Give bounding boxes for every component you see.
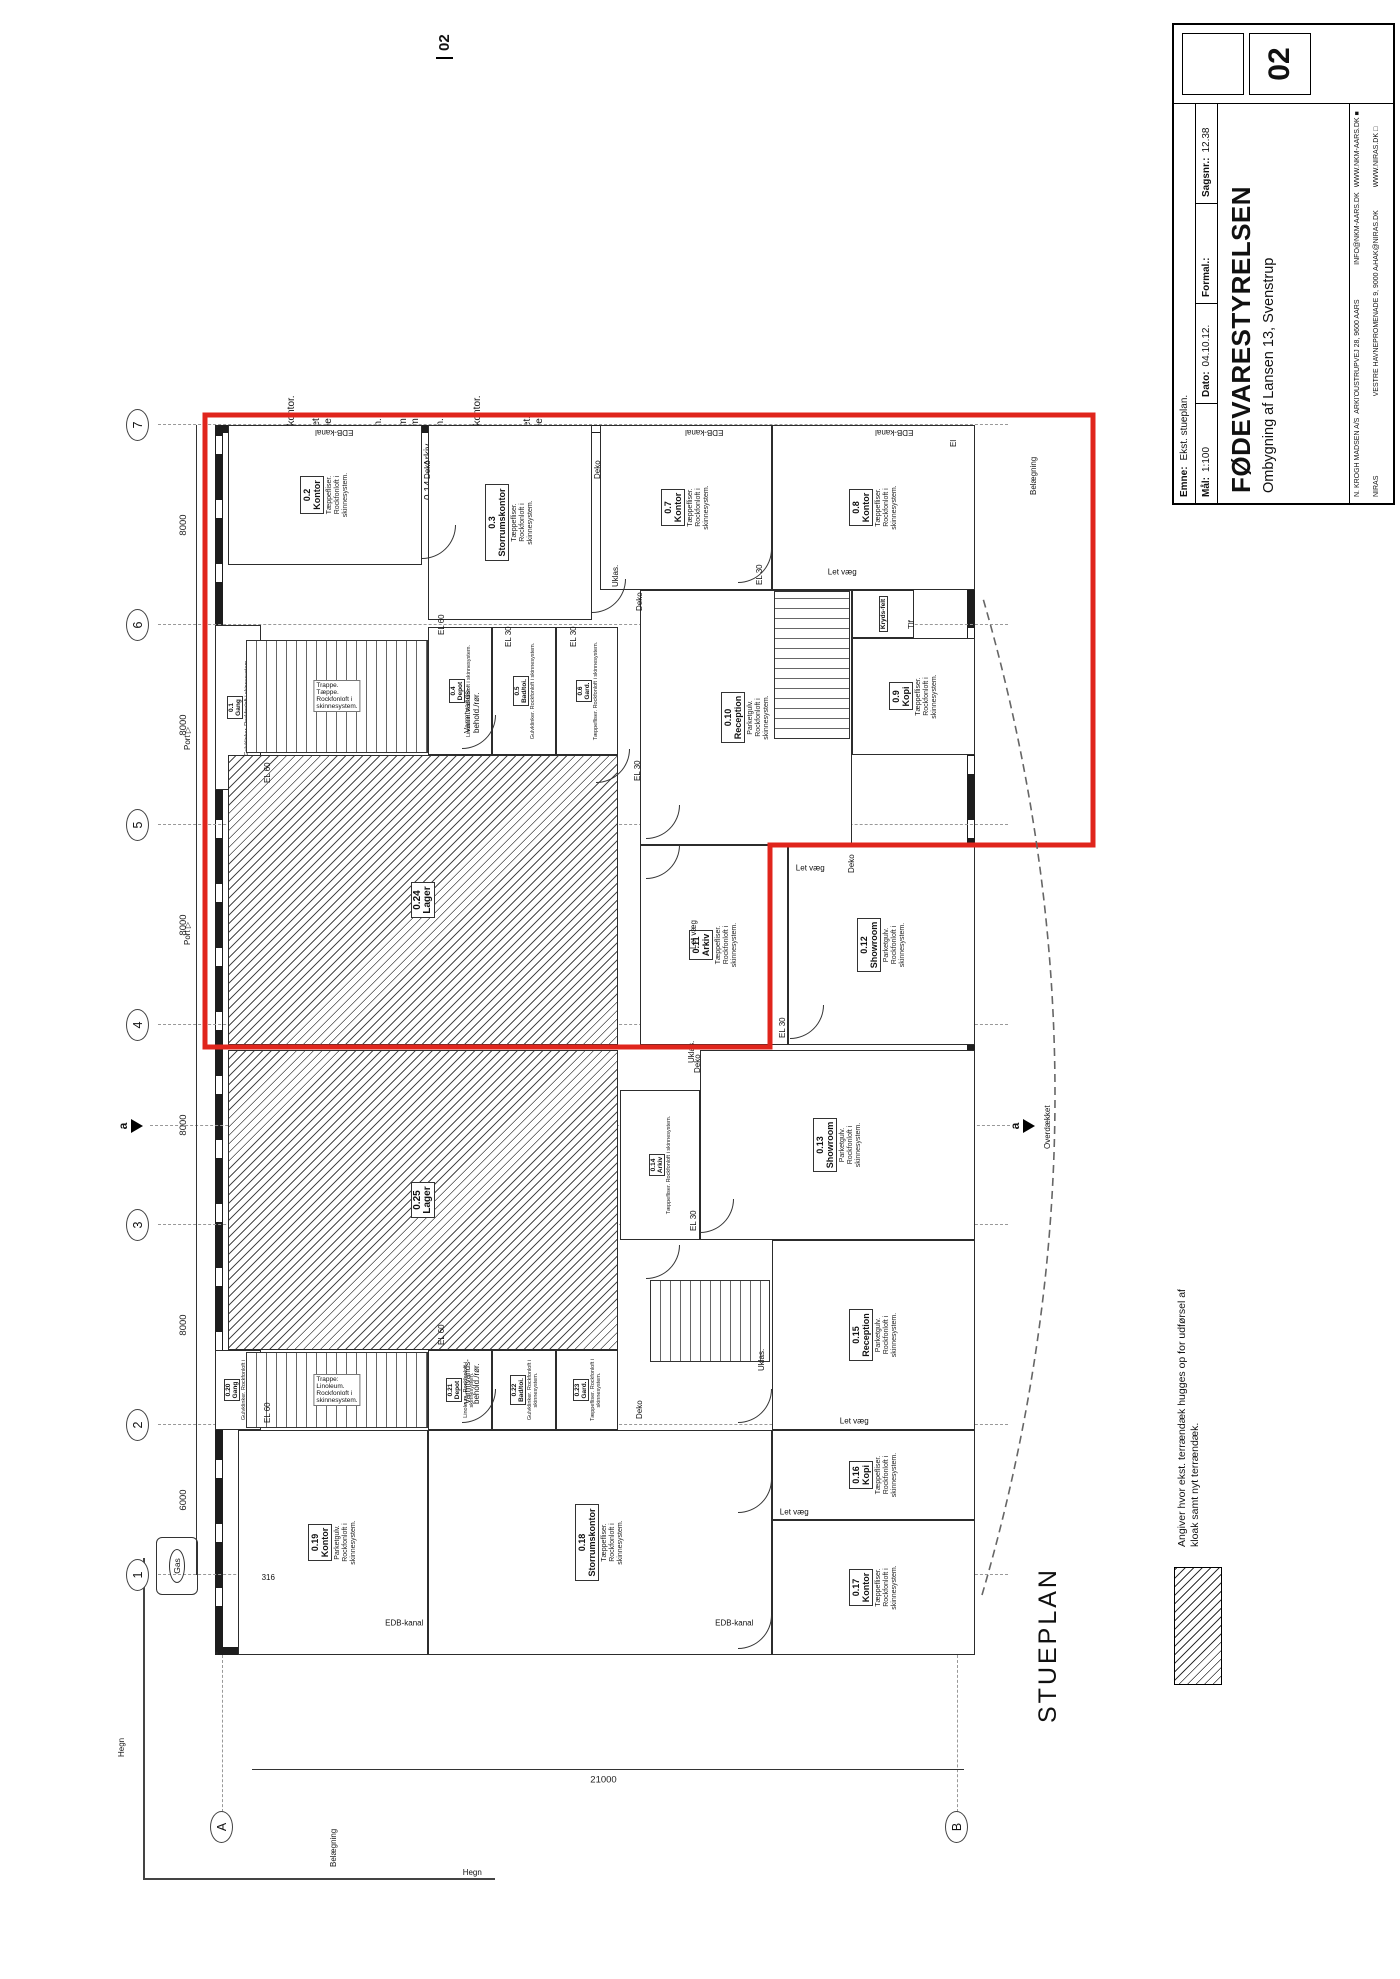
room-kryds-felt-label: Kryds-felt: [879, 596, 888, 632]
room-0-13-label: 0.13 Showroom: [813, 1118, 837, 1173]
sagsnr-value: 12.38: [1201, 128, 1212, 153]
room-0-17: 0.17 KontorTæppefliser. Rockfonloft i sk…: [772, 1520, 975, 1655]
room-0-25-label: 0.25 Lager: [411, 1182, 435, 1217]
room-0-10-floor: Parketgulv. Rockfonloft i skinnesystem.: [747, 695, 771, 739]
room-0-15: 0.15 ReceptionParketgulv. Rockfonloft i …: [772, 1240, 975, 1430]
room-0-15-label: 0.15 Reception: [849, 1309, 873, 1361]
plan-label-varmtvands-behold-r-r-: Varmtvands- behold./rør.: [464, 688, 481, 733]
grid-bubble-A: A: [210, 1811, 233, 1843]
title-block-emne-row: Emne: Ekst. stueplan.: [1174, 104, 1196, 503]
plan-label-uklas-: Uklas.: [612, 565, 621, 587]
plan-label-deko: Deko: [594, 460, 603, 479]
room-list-item-name: Reception.: [373, 130, 385, 466]
facade-wall-north: [215, 428, 223, 1652]
plan-label-el-30: EL 30: [690, 1210, 699, 1231]
room-0-18-label: 0.18 Storrumskontor: [575, 1505, 599, 1581]
title-block-number-column: 02: [1174, 25, 1393, 103]
room-0-11: 0.11 ArkivTæppefliser. Rockfonloft i ski…: [640, 845, 788, 1045]
plan-label-el-30: EL 30: [505, 626, 514, 647]
plan-label-el-60: EL 60: [438, 614, 447, 635]
room-0-6-label: 0.6 Gard.: [576, 680, 592, 703]
plan-label-hegn: Hegn: [118, 1738, 127, 1757]
grid-bubble-5: 5: [126, 809, 149, 841]
plan-label-let-v-g: Let væg: [828, 568, 857, 577]
room-list-item-name: Bad - toilet.: [311, 130, 323, 466]
title-block-main: Emne: Ekst. stueplan. Mål: 1:100 Dato: 0…: [1174, 103, 1393, 503]
plan-label-uklas-: Uklas.: [688, 1041, 697, 1063]
grid-bubble-1: 1: [126, 1559, 149, 1591]
section-arrow-icon: [1023, 1119, 1035, 1133]
firm2-email: HAK@NIRAS.DK: [1372, 187, 1391, 264]
room-0-17-floor: Tæppefliser. Rockfonloft i skinnesystem.: [875, 1565, 899, 1609]
room-0-2-floor: Tæppefliser. Rockfonloft i skinnesystem.: [326, 473, 350, 517]
plan-label-let-v-g: Let væg: [780, 1508, 809, 1517]
plan-label-el-30: EL 30: [756, 564, 765, 585]
room-0-22-floor: Gulvklinker. Rockfonloft i skinnesystem.: [527, 1351, 539, 1429]
plan-label-varmtvands-behold-r-r-: Varmtvands- behold./rør.: [464, 1359, 481, 1404]
plan-label-let-v-g: Let væg: [796, 864, 825, 873]
plan-label-deko: Deko: [424, 460, 433, 479]
room-0-22: 0.22 Bad/toi.Gulvklinker. Rockfonloft i …: [492, 1350, 556, 1430]
room-0-8-label: 0.8 Kontor: [849, 489, 873, 527]
grid-dimension: 6000: [178, 1478, 189, 1522]
revision-box: [1182, 33, 1244, 95]
room-0-23-label: 0.23 Gard.: [573, 1379, 589, 1402]
room-list-item-name: Kopirum.: [361, 130, 373, 466]
room-0-23: 0.23 Gard.Tæppefliser. Rockfonloft i ski…: [556, 1350, 618, 1430]
legend-text: Angiver hvor ekst. terrændæk hugges op f…: [1176, 1279, 1202, 1547]
room-list-item-name: Kontor.: [485, 130, 497, 466]
firm1-name: N. KROGH MADSEN A/S ARKITEKTER MAA: [1353, 396, 1372, 497]
grid-dimension: 8000: [178, 1303, 189, 1347]
maal-label: Mål:: [1201, 477, 1212, 497]
grid-dimension: 8000: [178, 503, 189, 547]
room-list-item-name: Garderobe.: [323, 130, 335, 466]
stairs-4: [650, 1280, 770, 1362]
plan-label-el-60: EL 60: [264, 762, 273, 783]
grid-line-A: [222, 1655, 223, 1817]
plan-label-let-v-g: Let væg: [840, 1417, 869, 1426]
checkbox-empty-icon: □: [1373, 127, 1380, 131]
plan-title: STUEPLAN: [1034, 1567, 1063, 1723]
room-0-3: 0.3 StorrumskontorTæppefliser. Rockfonlo…: [428, 425, 592, 620]
room-list-item-name: Lager.: [559, 130, 571, 466]
emne-label: Emne:: [1179, 466, 1190, 497]
room-list-item-name: Kontor.: [348, 130, 360, 466]
room-0-7-label: 0.7 Kontor: [661, 489, 685, 527]
room-0-3-floor: Tæppefliser. Rockfonloft i skinnesystem.: [511, 500, 535, 544]
room-list-item-name: Kopirum.: [448, 130, 460, 466]
maal-value: 1:100: [1201, 447, 1212, 472]
room-0-22-label: 0.22 Bad/toi.: [510, 1375, 526, 1405]
room-0-6-floor: Tæppefliser. Rockfonloft i skinnesystem.: [593, 642, 599, 740]
room-0-5: 0.5 Bad/toi.Gulvklinker. Rockfonloft i s…: [492, 627, 556, 755]
room-0-25: 0.25 Lager: [228, 1050, 618, 1350]
client-name: FØDEVARESTYRELSEN: [1226, 114, 1257, 493]
room-0-24: 0.24 Lager: [228, 755, 618, 1045]
legend-hatch-swatch: [1174, 1567, 1222, 1685]
grid-dim-chain: [196, 425, 197, 1575]
room-0-13-floor: Parketgulv. Rockfonloft i skinnesystem.: [839, 1123, 863, 1167]
drawing-number-box: 02: [1249, 33, 1311, 95]
room-0-16-floor: Tæppefliser. Rockfonloft i skinnesystem.: [875, 1453, 899, 1497]
plan-label-edb-kanal: EDB-kanal: [385, 1620, 423, 1629]
gas-unit: Gas: [156, 1537, 198, 1595]
room-list-item-name: Lager.: [547, 130, 559, 466]
room-list-item-name: Storrumskontor.: [472, 130, 484, 466]
room-0-18-floor: Tæppefliser. Rockfonloft i skinnesystem.: [601, 1520, 625, 1564]
plan-label-uklas-: Uklas.: [758, 1349, 767, 1371]
plan-label-overd-kket: Overdækket: [1044, 1105, 1053, 1149]
stairs-label: Trappe. Tæppe. Rockfonloft i skinnesyste…: [313, 681, 360, 713]
room-0-1-label: 0.1 Gang: [227, 696, 243, 719]
plan-label-tlf: Tlf: [908, 620, 917, 629]
room-0-21-label: 0.21 Depot: [446, 1378, 462, 1402]
room-0-19-label: 0.19 Kontor: [308, 1524, 332, 1562]
grid-bubble-4: 4: [126, 1009, 149, 1041]
dato-cell: Dato: 04.10.12.: [1196, 303, 1217, 403]
section-marker-label: a: [1008, 1123, 1022, 1130]
emne-value: Ekst. stueplan.: [1179, 395, 1190, 461]
stairs-2: Trappe: Linoleum. Rockfonloft i skinnesy…: [246, 1352, 428, 1428]
firm1-address: OUSTRUPVEJ 28, 9600 AARS: [1353, 265, 1372, 397]
title-block-project: FØDEVARESTYRELSEN Ombygning af Lansen 13…: [1218, 104, 1349, 503]
format-cell: Formal.:: [1196, 203, 1217, 303]
room-list-item-name: Reception.: [435, 130, 447, 466]
fence-line: [143, 1878, 495, 1880]
plan-label-el-30: EL 30: [779, 1017, 788, 1038]
plan-label-bel-gning: Belægning: [1030, 457, 1039, 495]
plan-label-hegn: Hegn: [463, 1869, 482, 1878]
format-label: Formal.:: [1201, 258, 1212, 297]
plan-label-port-: Port ▷: [184, 922, 193, 945]
room-list-item-name: Depot.: [299, 130, 311, 466]
room-list-item-name: Kontor.: [460, 130, 472, 466]
section-arrow-icon: [131, 1119, 143, 1133]
dato-value: 04.10.12.: [1201, 325, 1212, 367]
room-list-item-name: Depot.: [510, 130, 522, 466]
firm1-web: WWW.NKM-AARS.DK ■: [1353, 110, 1372, 187]
room-list-item-name: Bad / toilet.: [522, 130, 534, 466]
room-0-16-label: 0.16 Kopi: [849, 1461, 873, 1489]
room-list-item-name: Garderobe.: [534, 130, 546, 466]
plan-label-el-30: EL 30: [634, 760, 643, 781]
room-list-item-name: Kontor.: [336, 130, 348, 466]
sheet-number-top: 02: [436, 34, 453, 59]
room-0-10-label: 0.10 Reception: [721, 692, 745, 744]
room-0-9-label: 0.9 Kopi: [889, 683, 913, 711]
plan-label-edb-kanal: EDB-kanal: [715, 1620, 753, 1629]
plan-label-316: 316: [262, 1574, 275, 1583]
dim-ab-line: [252, 1769, 964, 1770]
room-0-6: 0.6 Gard.Tæppefliser. Rockfonloft i skin…: [556, 627, 618, 755]
room-list-item-name: Storrumskontor.: [286, 130, 298, 466]
room-0-5-label: 0.5 Bad/toi.: [513, 676, 529, 706]
firm2-address: VESTRE HAVNEPROMENADE 9, 9000 AALBORG: [1372, 265, 1391, 397]
grid-bubble-2: 2: [126, 1409, 149, 1441]
plan-label-deko: Deko: [636, 1400, 645, 1419]
grid-bubble-B: B: [945, 1811, 968, 1843]
room-list-item-name: Kontor.: [274, 130, 286, 466]
room-0-17-label: 0.17 Kontor: [849, 1569, 873, 1607]
plan-label-deko: Deko: [636, 592, 645, 611]
grid-bubble-7: 7: [126, 409, 149, 441]
grid-bubble-6: 6: [126, 609, 149, 641]
plan-label-el-60: EL 60: [438, 1324, 447, 1345]
grid-bubble-3: 3: [126, 1209, 149, 1241]
room-list-item-name: Gang.: [261, 130, 273, 466]
plan-label-edb-kanal: EDB-kanal: [685, 428, 723, 437]
gas-label: Gas: [169, 1549, 185, 1583]
room-0-5-floor: Gulvklinker. Rockfonloft i skinnesystem.: [530, 643, 536, 740]
room-0-12-floor: Parketgulv. Rockfonloft i skinnesystem.: [883, 923, 907, 967]
maal-cell: Mål: 1:100: [1196, 403, 1217, 503]
plan-label-el-60: EL 60: [264, 1402, 273, 1423]
room-0-9-floor: Tæppefliser. Rockfonloft i skinnesystem.: [915, 674, 939, 718]
room-kryds-felt: Kryds-felt: [852, 590, 914, 638]
room-0-14-floor: Tæppefliser. Rockfonloft i skinnesystem.: [666, 1116, 672, 1214]
plan-label-edb-kanal: EDB-kanal: [875, 428, 913, 437]
section-marker-label: a: [116, 1123, 130, 1130]
room-0-13: 0.13 ShowroomParketgulv. Rockfonloft i s…: [700, 1050, 975, 1240]
plan-label-deko: Deko: [848, 854, 857, 873]
room-0-8-floor: Tæppefliser. Rockfonloft i skinnesystem.: [875, 485, 899, 529]
room-list-item-name: Showroom.: [410, 130, 422, 466]
room-0-2: 0.2 KontorTæppefliser. Rockfonloft i ski…: [228, 425, 422, 565]
room-0-11-floor: Tæppefliser. Rockfonloft i skinnesystem.: [715, 923, 739, 967]
stairs-label: Trappe: Linoleum. Rockfonloft i skinnesy…: [313, 1374, 360, 1406]
room-0-24-label: 0.24 Lager: [411, 882, 435, 917]
canopy-arc: [982, 595, 1055, 1595]
sagsnr-cell: Sagsnr.: 12.38: [1196, 104, 1217, 203]
firm1-email: INFO@NKM-AARS.DK: [1353, 187, 1372, 264]
section-marker-a-top: a: [116, 1119, 143, 1133]
stairs-3: [774, 591, 850, 739]
title-block-fields-row: Mål: 1:100 Dato: 04.10.12. Formal.: Sags…: [1196, 104, 1218, 503]
room-0-15-floor: Parketgulv. Rockfonloft i skinnesystem.: [875, 1313, 899, 1357]
room-0-3-label: 0.3 Storrumskontor: [485, 485, 509, 561]
room-0-19-floor: Parketgulv. Rockfonloft i skinnesystem.: [334, 1520, 358, 1564]
dim-ab-label: 21000: [590, 1774, 616, 1785]
drawing-sheet: Gas a a 02 STUEPLAN Angiver hvor ekst. t…: [0, 0, 1400, 1979]
grid-line-B: [957, 1655, 958, 1817]
room-0-12-label: 0.12 Showroom: [857, 918, 881, 973]
plan-label-port-: Port ▷: [184, 727, 193, 750]
title-block: Emne: Ekst. stueplan. Mål: 1:100 Dato: 0…: [1172, 23, 1395, 505]
dato-label: Dato:: [1201, 371, 1212, 397]
room-0-23-floor: Tæppefliser. Rockfonloft i skinnesystem.: [590, 1351, 602, 1429]
title-block-firms: N. KROGH MADSEN A/S ARKITEKTER MAA OUSTR…: [1349, 104, 1393, 503]
project-name: Ombygning af Lansen 13, Svenstrup: [1261, 114, 1277, 493]
plan-label-el-30: EL 30: [570, 626, 579, 647]
plan-label-edb-kanal: EDB-kanal: [315, 428, 353, 437]
room-0-20-label: 0.20 Gang: [224, 1379, 240, 1402]
grid-dimension: 8000: [178, 1103, 189, 1147]
room-list-item-name: Showroom.: [398, 130, 410, 466]
room-list-item-name: Arkiv.: [423, 130, 435, 466]
fence-line: [143, 1558, 145, 1880]
room-list-item-name: Gang.: [497, 130, 509, 466]
checkbox-filled-icon: ■: [1354, 111, 1361, 115]
firm2-web: WWW.NIRAS.DK □: [1372, 110, 1391, 187]
room-0-9: 0.9 KopiTæppefliser. Rockfonloft i skinn…: [852, 638, 975, 755]
stairs-1: Trappe. Tæppe. Rockfonloft i skinnesyste…: [246, 640, 428, 753]
room-0-14-label: 0.14 Arkiv: [649, 1154, 665, 1176]
plan-label-let-v-g: Let væg: [690, 920, 699, 949]
plan-label-bel-gning: Belægning: [330, 1829, 339, 1867]
firm2-name: NIRAS: [1372, 396, 1391, 497]
plan-label-el: El: [950, 440, 959, 447]
section-marker-a-bottom: a: [1008, 1119, 1035, 1133]
sagsnr-label: Sagsnr.:: [1201, 158, 1212, 197]
room-0-7-floor: Tæppefliser. Rockfonloft i skinnesystem.: [687, 485, 711, 529]
room-list-item-name: Arkiv.: [385, 130, 397, 466]
room-0-14: 0.14 ArkivTæppefliser. Rockfonloft i ski…: [620, 1090, 700, 1240]
room-0-2-label: 0.2 Kontor: [300, 476, 324, 514]
room-0-8: 0.8 KontorTæppefliser. Rockfonloft i ski…: [772, 425, 975, 590]
